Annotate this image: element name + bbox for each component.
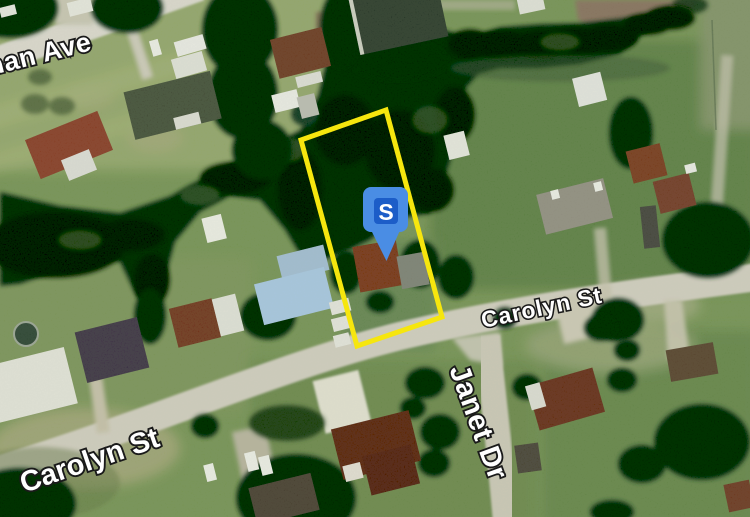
svg-text:S: S <box>378 199 393 225</box>
